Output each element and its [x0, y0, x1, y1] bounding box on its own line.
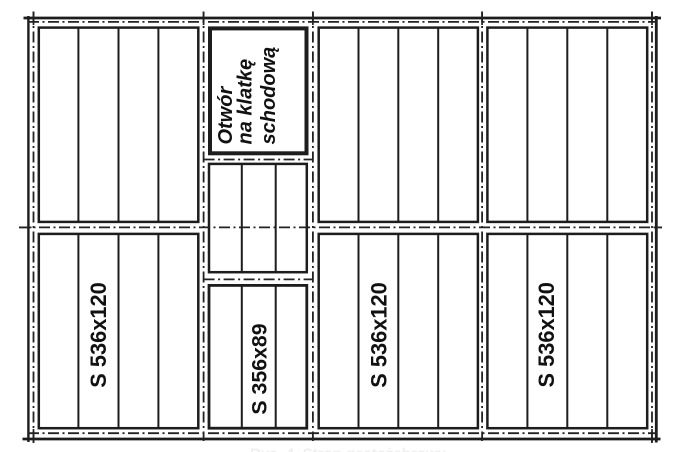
svg-text:S 536x120: S 536x120 [366, 282, 391, 387]
svg-text:na klatkę: na klatkę [235, 59, 257, 145]
svg-text:S 536x120: S 536x120 [534, 282, 559, 387]
svg-text:Rys. 4. Strop gęstożebrowy: Rys. 4. Strop gęstożebrowy [250, 446, 447, 452]
svg-text:S 536x120: S 536x120 [86, 282, 111, 387]
svg-text:S 356x89: S 356x89 [248, 323, 272, 414]
svg-text:schodową: schodową [258, 47, 280, 145]
